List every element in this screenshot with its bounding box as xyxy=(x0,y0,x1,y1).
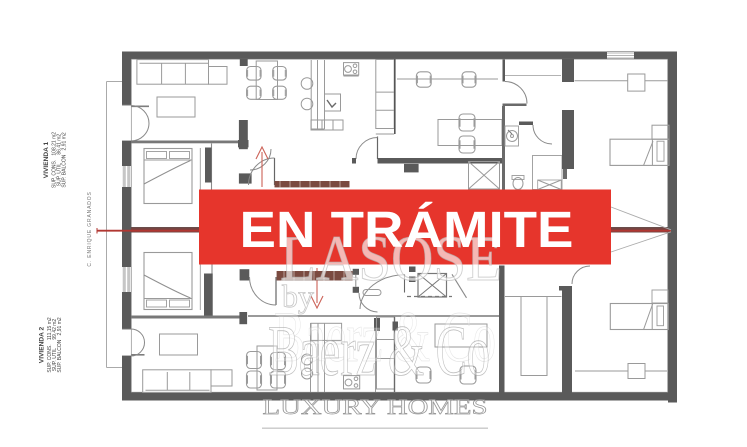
svg-text:Baerz & Co: Baerz & Co xyxy=(268,311,490,391)
svg-text:VIVIENDA 1: VIVIENDA 1 xyxy=(43,141,50,178)
svg-text:VIVIENDA 2: VIVIENDA 2 xyxy=(39,326,46,363)
svg-text:SUP. BALCON 2,91 m2: SUP. BALCON 2,91 m2 xyxy=(57,317,63,372)
svg-text:EN TRÁMITE: EN TRÁMITE xyxy=(240,201,574,258)
svg-text:SUP. BALCON 2,91 m2: SUP. BALCON 2,91 m2 xyxy=(62,132,68,187)
svg-text:C. ENRIQUE GRANADOS: C. ENRIQUE GRANADOS xyxy=(87,191,93,266)
svg-text:LUXURY HOMES: LUXURY HOMES xyxy=(263,394,488,419)
